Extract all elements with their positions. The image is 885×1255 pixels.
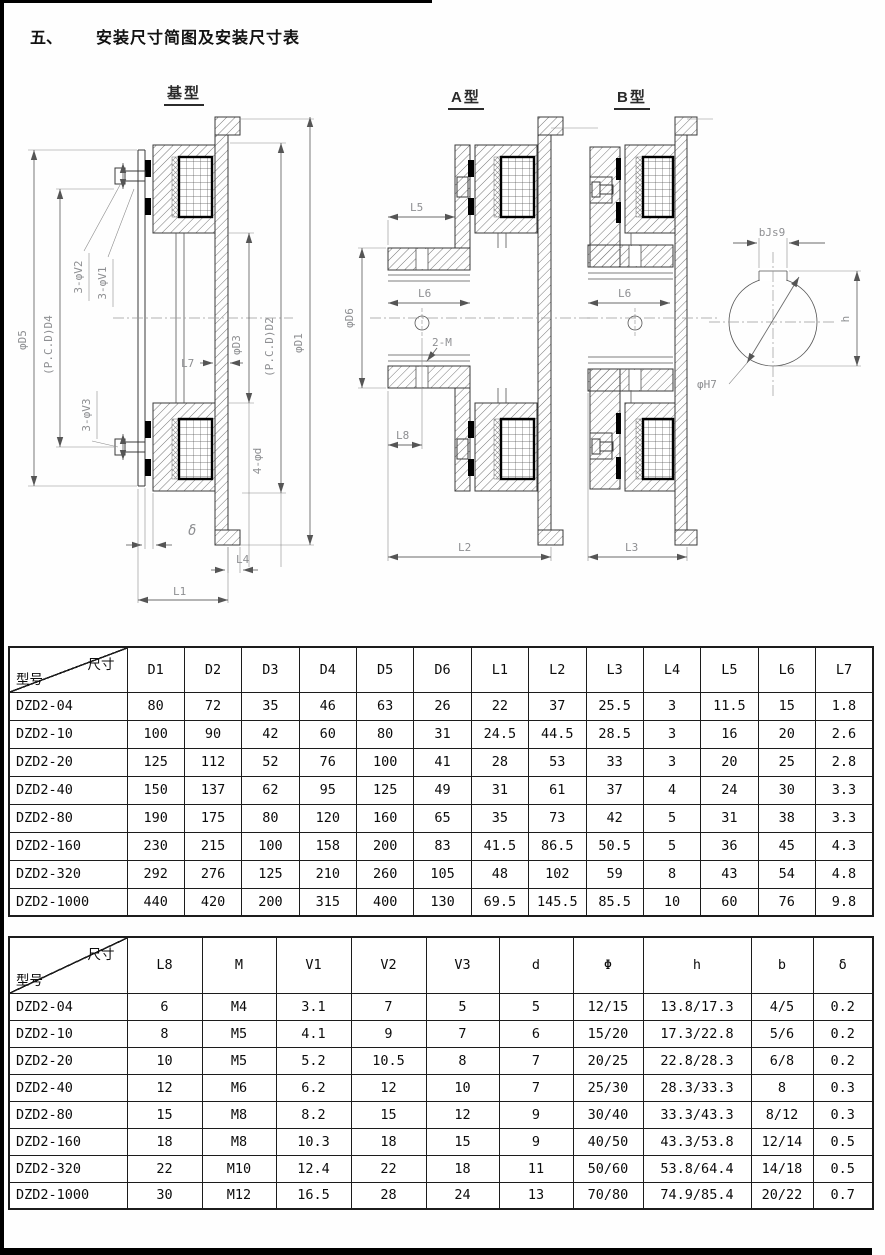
value-cell: 15 bbox=[758, 692, 815, 720]
value-cell: 30 bbox=[758, 776, 815, 804]
value-cell: 26 bbox=[414, 692, 471, 720]
value-cell: 22 bbox=[127, 1155, 202, 1182]
corner-label-size: 尺寸 bbox=[88, 653, 115, 673]
dim-label-l6b: L6 bbox=[618, 287, 631, 300]
value-cell: 60 bbox=[299, 720, 356, 748]
value-cell: 13.8/17.3 bbox=[643, 993, 751, 1020]
value-cell: 18 bbox=[127, 1128, 202, 1155]
value-cell: 190 bbox=[127, 804, 184, 832]
value-cell: 20/25 bbox=[573, 1047, 643, 1074]
dimensions-table-2: 尺寸型号L8MV1V2V3dΦhbδDZD2-046M43.175512/151… bbox=[8, 936, 874, 1210]
value-cell: 276 bbox=[184, 860, 241, 888]
scan-border-left bbox=[0, 0, 4, 1255]
value-cell: 24 bbox=[426, 1182, 499, 1209]
value-cell: 35 bbox=[242, 692, 299, 720]
base-type-drawing: φD5 (P.C.D)D4 3-φV2 3-φV1 3-φV3 φD3 4-φd… bbox=[18, 105, 333, 620]
flange-boss bbox=[215, 117, 240, 135]
value-cell: 44.5 bbox=[529, 720, 586, 748]
value-cell: 43 bbox=[701, 860, 758, 888]
value-cell: 54 bbox=[758, 860, 815, 888]
dim-label-2m: 2-M bbox=[432, 336, 452, 349]
dim-label-l2: L2 bbox=[458, 541, 471, 554]
dim-label-d1: φD1 bbox=[292, 333, 305, 353]
value-cell: 6/8 bbox=[751, 1047, 813, 1074]
value-cell: 20/22 bbox=[751, 1182, 813, 1209]
value-cell: 53.8/64.4 bbox=[643, 1155, 751, 1182]
col-header: V2 bbox=[351, 937, 426, 993]
dim-label-delta: δ bbox=[188, 523, 196, 539]
dim-label-bjs9: bJs9 bbox=[759, 226, 786, 239]
value-cell: 18 bbox=[426, 1155, 499, 1182]
scan-border-top bbox=[0, 0, 432, 3]
value-cell: 15/20 bbox=[573, 1020, 643, 1047]
value-cell: 20 bbox=[758, 720, 815, 748]
col-header: M bbox=[202, 937, 276, 993]
model-cell: DZD2-320 bbox=[9, 1155, 127, 1182]
value-cell: 12/15 bbox=[573, 993, 643, 1020]
col-header: V1 bbox=[276, 937, 351, 993]
value-cell: 10 bbox=[127, 1047, 202, 1074]
adjust-screw bbox=[115, 168, 125, 184]
base-type-label: 基型 bbox=[164, 82, 204, 106]
value-cell: 76 bbox=[758, 888, 815, 916]
col-header: D6 bbox=[414, 647, 471, 692]
value-cell: 440 bbox=[127, 888, 184, 916]
value-cell: 65 bbox=[414, 804, 471, 832]
value-cell: 22.8/28.3 bbox=[643, 1047, 751, 1074]
value-cell: 42 bbox=[242, 720, 299, 748]
value-cell: 62 bbox=[242, 776, 299, 804]
adjust-screw bbox=[125, 442, 145, 452]
dim-label-l8: L8 bbox=[396, 429, 409, 442]
value-cell: 3.1 bbox=[276, 993, 351, 1020]
value-cell: 38 bbox=[758, 804, 815, 832]
value-cell: 45 bbox=[758, 832, 815, 860]
value-cell: 0.3 bbox=[813, 1074, 873, 1101]
flange-boss bbox=[215, 530, 240, 545]
value-cell: 6 bbox=[127, 993, 202, 1020]
value-cell: M8 bbox=[202, 1128, 276, 1155]
value-cell: 33.3/43.3 bbox=[643, 1101, 751, 1128]
value-cell: 3 bbox=[643, 748, 700, 776]
value-cell: 35 bbox=[471, 804, 528, 832]
adjust-screw bbox=[115, 439, 125, 455]
value-cell: 260 bbox=[357, 860, 414, 888]
value-cell: 28.3/33.3 bbox=[643, 1074, 751, 1101]
dim-label-l4: L4 bbox=[236, 553, 250, 566]
col-header: L6 bbox=[758, 647, 815, 692]
value-cell: 69.5 bbox=[471, 888, 528, 916]
table-row: DZD2-40150137629512549316137424303.3 bbox=[9, 776, 873, 804]
value-cell: 130 bbox=[414, 888, 471, 916]
dim-label-pcd-d2: (P.C.D)D2 bbox=[263, 317, 276, 377]
value-cell: 17.3/22.8 bbox=[643, 1020, 751, 1047]
value-cell: 3 bbox=[643, 720, 700, 748]
value-cell: 9.8 bbox=[816, 888, 874, 916]
value-cell: 1.8 bbox=[816, 692, 874, 720]
value-cell: 25/30 bbox=[573, 1074, 643, 1101]
value-cell: 24 bbox=[701, 776, 758, 804]
value-cell: M10 bbox=[202, 1155, 276, 1182]
value-cell: 33 bbox=[586, 748, 643, 776]
value-cell: 8 bbox=[643, 860, 700, 888]
value-cell: 4/5 bbox=[751, 993, 813, 1020]
value-cell: 7 bbox=[499, 1047, 573, 1074]
coil bbox=[179, 157, 212, 217]
value-cell: 8 bbox=[127, 1020, 202, 1047]
friction-bar bbox=[145, 160, 151, 177]
value-cell: 0.2 bbox=[813, 993, 873, 1020]
value-cell: 125 bbox=[242, 860, 299, 888]
col-header: L2 bbox=[529, 647, 586, 692]
model-cell: DZD2-40 bbox=[9, 776, 127, 804]
value-cell: 15 bbox=[426, 1128, 499, 1155]
coil bbox=[643, 157, 673, 217]
value-cell: 9 bbox=[351, 1020, 426, 1047]
value-cell: 4.1 bbox=[276, 1020, 351, 1047]
section-number: 五、 bbox=[30, 24, 62, 48]
value-cell: 4.8 bbox=[816, 860, 874, 888]
mounting-flange bbox=[538, 135, 551, 530]
col-header: L8 bbox=[127, 937, 202, 993]
dim-label-d6: φD6 bbox=[343, 308, 356, 328]
value-cell: 28 bbox=[351, 1182, 426, 1209]
value-cell: 76 bbox=[299, 748, 356, 776]
friction-bar bbox=[145, 421, 151, 438]
model-cell: DZD2-160 bbox=[9, 1128, 127, 1155]
value-cell: 20 bbox=[701, 748, 758, 776]
value-cell: 53 bbox=[529, 748, 586, 776]
dim-label-pcd-d4: (P.C.D)D4 bbox=[42, 315, 55, 375]
value-cell: 292 bbox=[127, 860, 184, 888]
scan-border-bottom bbox=[0, 1248, 872, 1255]
value-cell: 4.3 bbox=[816, 832, 874, 860]
value-cell: 0.5 bbox=[813, 1155, 873, 1182]
value-cell: 5 bbox=[643, 832, 700, 860]
value-cell: 5/6 bbox=[751, 1020, 813, 1047]
value-cell: 22 bbox=[471, 692, 528, 720]
col-header: D2 bbox=[184, 647, 241, 692]
value-cell: 13 bbox=[499, 1182, 573, 1209]
value-cell: 12 bbox=[426, 1101, 499, 1128]
value-cell: 5.2 bbox=[276, 1047, 351, 1074]
value-cell: 420 bbox=[184, 888, 241, 916]
value-cell: 12 bbox=[127, 1074, 202, 1101]
value-cell: 102 bbox=[529, 860, 586, 888]
value-cell: 15 bbox=[127, 1101, 202, 1128]
col-header: D4 bbox=[299, 647, 356, 692]
adjust-screw bbox=[125, 171, 145, 181]
dim-label-l5: L5 bbox=[410, 201, 423, 214]
col-header: D3 bbox=[242, 647, 299, 692]
table-row: DZD2-801901758012016065357342531383.3 bbox=[9, 804, 873, 832]
dimensions-table-1: 尺寸型号D1D2D3D4D5D6L1L2L3L4L5L6L7DZD2-04807… bbox=[8, 646, 874, 917]
value-cell: M8 bbox=[202, 1101, 276, 1128]
col-header: L1 bbox=[471, 647, 528, 692]
value-cell: 215 bbox=[184, 832, 241, 860]
dim-label-d3: φD3 bbox=[230, 335, 243, 355]
value-cell: 16 bbox=[701, 720, 758, 748]
value-cell: 73 bbox=[529, 804, 586, 832]
dim-label-l6: L6 bbox=[418, 287, 431, 300]
col-header: L7 bbox=[816, 647, 874, 692]
value-cell: 7 bbox=[499, 1074, 573, 1101]
corner-cell: 尺寸型号 bbox=[9, 647, 127, 692]
value-cell: 3.3 bbox=[816, 804, 874, 832]
value-cell: 8.2 bbox=[276, 1101, 351, 1128]
coil bbox=[501, 419, 534, 479]
value-cell: 6.2 bbox=[276, 1074, 351, 1101]
model-cell: DZD2-04 bbox=[9, 692, 127, 720]
value-cell: 30/40 bbox=[573, 1101, 643, 1128]
value-cell: 11 bbox=[499, 1155, 573, 1182]
value-cell: 5 bbox=[426, 993, 499, 1020]
corner-label-model: 型号 bbox=[16, 969, 43, 989]
col-header: Φ bbox=[573, 937, 643, 993]
value-cell: 86.5 bbox=[529, 832, 586, 860]
model-cell: DZD2-320 bbox=[9, 860, 127, 888]
table-row: DZD2-1602302151001582008341.586.550.5536… bbox=[9, 832, 873, 860]
dim-label-v2: 3-φV2 bbox=[72, 260, 85, 293]
value-cell: 72 bbox=[184, 692, 241, 720]
value-cell: 12 bbox=[351, 1074, 426, 1101]
table-row: DZD2-100030M1216.528241370/8074.9/85.420… bbox=[9, 1182, 873, 1209]
value-cell: 80 bbox=[127, 692, 184, 720]
value-cell: 31 bbox=[701, 804, 758, 832]
table-row: DZD2-108M54.197615/2017.3/22.85/60.2 bbox=[9, 1020, 873, 1047]
value-cell: 63 bbox=[357, 692, 414, 720]
value-cell: 42 bbox=[586, 804, 643, 832]
table-row: DZD2-20125112527610041285333320252.8 bbox=[9, 748, 873, 776]
value-cell: 85.5 bbox=[586, 888, 643, 916]
hub bbox=[388, 366, 470, 388]
value-cell: 210 bbox=[299, 860, 356, 888]
value-cell: 11.5 bbox=[701, 692, 758, 720]
value-cell: 41.5 bbox=[471, 832, 528, 860]
model-cell: DZD2-20 bbox=[9, 748, 127, 776]
value-cell: 10.5 bbox=[351, 1047, 426, 1074]
value-cell: 22 bbox=[351, 1155, 426, 1182]
value-cell: 46 bbox=[299, 692, 356, 720]
value-cell: 50.5 bbox=[586, 832, 643, 860]
value-cell: 18 bbox=[351, 1128, 426, 1155]
value-cell: 61 bbox=[529, 776, 586, 804]
value-cell: 80 bbox=[357, 720, 414, 748]
keyway-detail-drawing: bJs9 h φH7 bbox=[695, 180, 885, 420]
value-cell: 10 bbox=[643, 888, 700, 916]
value-cell: 31 bbox=[471, 776, 528, 804]
value-cell: 7 bbox=[351, 993, 426, 1020]
value-cell: 200 bbox=[242, 888, 299, 916]
value-cell: 0.2 bbox=[813, 1020, 873, 1047]
col-header: d bbox=[499, 937, 573, 993]
value-cell: 3.3 bbox=[816, 776, 874, 804]
value-cell: 41 bbox=[414, 748, 471, 776]
value-cell: 2.8 bbox=[816, 748, 874, 776]
value-cell: 5 bbox=[643, 804, 700, 832]
friction-bar bbox=[145, 198, 151, 215]
value-cell: 100 bbox=[357, 748, 414, 776]
value-cell: 7 bbox=[426, 1020, 499, 1047]
value-cell: 60 bbox=[701, 888, 758, 916]
value-cell: 43.3/53.8 bbox=[643, 1128, 751, 1155]
value-cell: 37 bbox=[529, 692, 586, 720]
dim-label-l3: L3 bbox=[625, 541, 638, 554]
value-cell: 200 bbox=[357, 832, 414, 860]
value-cell: 25 bbox=[758, 748, 815, 776]
value-cell: 80 bbox=[242, 804, 299, 832]
value-cell: 0.3 bbox=[813, 1101, 873, 1128]
page-title: 安装尺寸简图及安装尺寸表 bbox=[96, 24, 300, 48]
value-cell: 137 bbox=[184, 776, 241, 804]
model-cell: DZD2-80 bbox=[9, 1101, 127, 1128]
friction-bar bbox=[145, 459, 151, 476]
type-a-drawing: L5 L6 φD6 2-M L8 L2 bbox=[340, 105, 605, 605]
value-cell: 125 bbox=[357, 776, 414, 804]
value-cell: 125 bbox=[127, 748, 184, 776]
model-cell: DZD2-20 bbox=[9, 1047, 127, 1074]
model-cell: DZD2-1000 bbox=[9, 1182, 127, 1209]
value-cell: M6 bbox=[202, 1074, 276, 1101]
value-cell: 9 bbox=[499, 1128, 573, 1155]
table-row: DZD2-10100904260803124.544.528.5316202.6 bbox=[9, 720, 873, 748]
value-cell: 31 bbox=[414, 720, 471, 748]
value-cell: 70/80 bbox=[573, 1182, 643, 1209]
value-cell: M12 bbox=[202, 1182, 276, 1209]
value-cell: 12.4 bbox=[276, 1155, 351, 1182]
dim-label-h7: φH7 bbox=[697, 378, 717, 391]
model-cell: DZD2-160 bbox=[9, 832, 127, 860]
corner-label-size: 尺寸 bbox=[88, 943, 115, 963]
hub bbox=[388, 248, 470, 270]
value-cell: 5 bbox=[499, 993, 573, 1020]
table-row: DZD2-2010M55.210.58720/2522.8/28.36/80.2 bbox=[9, 1047, 873, 1074]
value-cell: 8 bbox=[751, 1074, 813, 1101]
catalog-page: 五、 安装尺寸简图及安装尺寸表 基型 A型 B型 bbox=[0, 0, 885, 1255]
value-cell: 105 bbox=[414, 860, 471, 888]
value-cell: 160 bbox=[357, 804, 414, 832]
model-cell: DZD2-80 bbox=[9, 804, 127, 832]
mounting-flange bbox=[215, 135, 228, 530]
col-header: D5 bbox=[357, 647, 414, 692]
value-cell: 25.5 bbox=[586, 692, 643, 720]
col-header: L5 bbox=[701, 647, 758, 692]
value-cell: 52 bbox=[242, 748, 299, 776]
model-cell: DZD2-40 bbox=[9, 1074, 127, 1101]
model-cell: DZD2-04 bbox=[9, 993, 127, 1020]
table-row: DZD2-32022M1012.422181150/6053.8/64.414/… bbox=[9, 1155, 873, 1182]
col-header: L3 bbox=[586, 647, 643, 692]
value-cell: 48 bbox=[471, 860, 528, 888]
value-cell: 112 bbox=[184, 748, 241, 776]
value-cell: 10 bbox=[426, 1074, 499, 1101]
table-row: DZD2-4012M66.21210725/3028.3/33.380.3 bbox=[9, 1074, 873, 1101]
value-cell: 100 bbox=[127, 720, 184, 748]
value-cell: 49 bbox=[414, 776, 471, 804]
value-cell: 0.7 bbox=[813, 1182, 873, 1209]
value-cell: 2.6 bbox=[816, 720, 874, 748]
value-cell: 40/50 bbox=[573, 1128, 643, 1155]
value-cell: 145.5 bbox=[529, 888, 586, 916]
table-row: DZD2-100044042020031540013069.5145.585.5… bbox=[9, 888, 873, 916]
col-header: V3 bbox=[426, 937, 499, 993]
value-cell: 100 bbox=[242, 832, 299, 860]
coil bbox=[179, 419, 212, 479]
mounting-flange bbox=[675, 135, 687, 530]
model-cell: DZD2-10 bbox=[9, 720, 127, 748]
value-cell: 90 bbox=[184, 720, 241, 748]
table-row: DZD2-04807235466326223725.5311.5151.8 bbox=[9, 692, 873, 720]
model-cell: DZD2-10 bbox=[9, 1020, 127, 1047]
table-row: DZD2-8015M88.21512930/4033.3/43.38/120.3 bbox=[9, 1101, 873, 1128]
value-cell: 28.5 bbox=[586, 720, 643, 748]
col-header: D1 bbox=[127, 647, 184, 692]
table-row: DZD2-16018M810.31815940/5043.3/53.812/14… bbox=[9, 1128, 873, 1155]
value-cell: 4 bbox=[643, 776, 700, 804]
value-cell: 150 bbox=[127, 776, 184, 804]
dim-label-l7: L7 bbox=[181, 357, 194, 370]
col-header: δ bbox=[813, 937, 873, 993]
dim-label-h: h bbox=[839, 316, 852, 323]
dim-label-v3: 3-φV3 bbox=[80, 398, 93, 431]
value-cell: 28 bbox=[471, 748, 528, 776]
value-cell: 15 bbox=[351, 1101, 426, 1128]
corner-label-model: 型号 bbox=[16, 668, 43, 688]
value-cell: 315 bbox=[299, 888, 356, 916]
value-cell: 74.9/85.4 bbox=[643, 1182, 751, 1209]
col-header: b bbox=[751, 937, 813, 993]
table-row: DZD2-046M43.175512/1513.8/17.34/50.2 bbox=[9, 993, 873, 1020]
value-cell: 95 bbox=[299, 776, 356, 804]
value-cell: 0.2 bbox=[813, 1047, 873, 1074]
value-cell: 9 bbox=[499, 1101, 573, 1128]
value-cell: 400 bbox=[357, 888, 414, 916]
value-cell: 10.3 bbox=[276, 1128, 351, 1155]
value-cell: 83 bbox=[414, 832, 471, 860]
value-cell: 6 bbox=[499, 1020, 573, 1047]
dim-label-4d: 4-φd bbox=[251, 448, 264, 475]
dimensions-table-1-wrap: 尺寸型号D1D2D3D4D5D6L1L2L3L4L5L6L7DZD2-04807… bbox=[8, 646, 874, 917]
value-cell: 175 bbox=[184, 804, 241, 832]
value-cell: 50/60 bbox=[573, 1155, 643, 1182]
value-cell: 16.5 bbox=[276, 1182, 351, 1209]
value-cell: 158 bbox=[299, 832, 356, 860]
table-row: DZD2-3202922761252102601054810259843544.… bbox=[9, 860, 873, 888]
coil bbox=[501, 157, 534, 217]
corner-cell: 尺寸型号 bbox=[9, 937, 127, 993]
value-cell: M4 bbox=[202, 993, 276, 1020]
dim-label-v1: 3-φV1 bbox=[96, 266, 109, 299]
model-cell: DZD2-1000 bbox=[9, 888, 127, 916]
value-cell: 59 bbox=[586, 860, 643, 888]
dim-label-d5: φD5 bbox=[18, 330, 29, 350]
dim-label-l1: L1 bbox=[173, 585, 186, 598]
coil bbox=[643, 419, 673, 479]
value-cell: 36 bbox=[701, 832, 758, 860]
value-cell: 14/18 bbox=[751, 1155, 813, 1182]
value-cell: 120 bbox=[299, 804, 356, 832]
col-header: L4 bbox=[643, 647, 700, 692]
value-cell: M5 bbox=[202, 1047, 276, 1074]
value-cell: M5 bbox=[202, 1020, 276, 1047]
col-header: h bbox=[643, 937, 751, 993]
value-cell: 8 bbox=[426, 1047, 499, 1074]
value-cell: 0.5 bbox=[813, 1128, 873, 1155]
value-cell: 37 bbox=[586, 776, 643, 804]
value-cell: 8/12 bbox=[751, 1101, 813, 1128]
value-cell: 30 bbox=[127, 1182, 202, 1209]
value-cell: 24.5 bbox=[471, 720, 528, 748]
